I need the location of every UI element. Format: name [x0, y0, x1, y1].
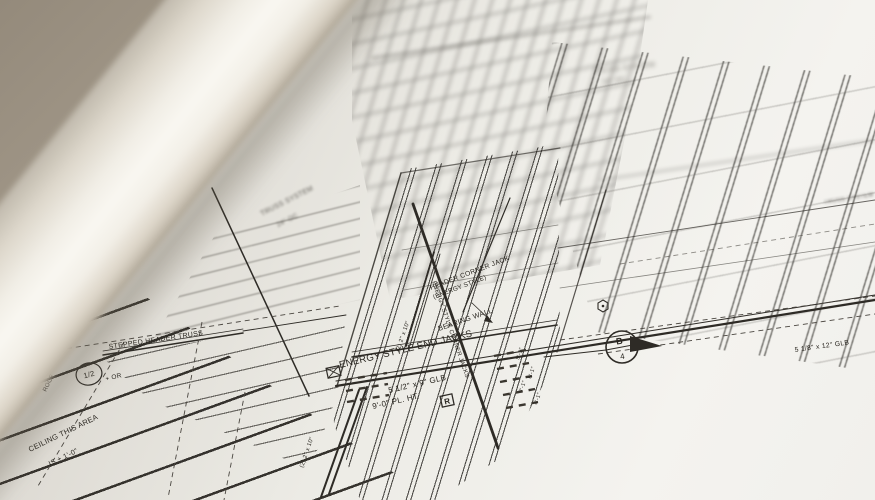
label-glb-beam-large: 5 1/8" x 12" GLB — [794, 339, 850, 354]
label-ceiling-note-2: IS + 1'-0" — [48, 448, 80, 468]
blueprint-photo: R 1/2 + OR B 4 HEADER CORNER JACK — [0, 0, 875, 500]
section-marker-letter: B — [615, 335, 624, 346]
section-arrow-icon — [630, 336, 662, 352]
label-truss-system-left-1: TRUSS SYSTEM — [260, 185, 315, 218]
label-2x10-wall-lower: (2) 2" x 10" — [299, 436, 315, 468]
hexagon-tag-symbol — [598, 300, 608, 312]
framing-box-x-symbol — [326, 366, 341, 378]
dim-2: 6'-1" — [527, 366, 537, 380]
label-top-right-note-1: TRUSS SYSTEM — [593, 60, 656, 76]
dim-3: 3'-1" — [518, 380, 528, 394]
section-marker-number: 4 — [619, 352, 625, 362]
dim-4: 4'-1" — [533, 392, 543, 406]
label-truss-system-left-2: 24" OC — [276, 212, 300, 229]
framing-box-r-symbol: R — [440, 394, 454, 407]
framing-box-letter: R — [443, 396, 451, 406]
label-top-right-note-2: 24" OC — [601, 76, 626, 86]
sheet-border-line — [372, 17, 875, 180]
dim-1: 5'-1" — [515, 347, 525, 361]
label-plate-height: 9'-0" PL. HT. — [371, 391, 420, 411]
